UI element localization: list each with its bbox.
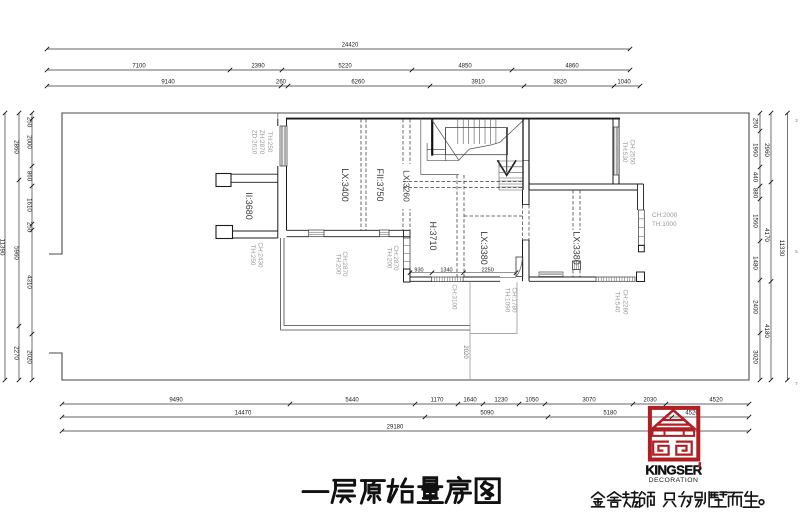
svg-text:FII:3750: FII:3750 xyxy=(375,168,385,201)
svg-text:1040: 1040 xyxy=(617,80,631,86)
svg-text:1560: 1560 xyxy=(751,214,758,228)
svg-text:2390: 2390 xyxy=(251,64,265,70)
svg-text:CH:2870: CH:2870 xyxy=(392,245,399,271)
svg-text:6260: 6260 xyxy=(351,80,365,86)
svg-text:860: 860 xyxy=(25,171,32,182)
svg-text:TH:250: TH:250 xyxy=(249,245,256,266)
svg-text:4520: 4520 xyxy=(709,398,723,404)
svg-text:9140: 9140 xyxy=(161,80,175,86)
svg-text:DECORATION: DECORATION xyxy=(649,477,699,484)
svg-text:4310: 4310 xyxy=(25,275,32,289)
svg-text:5090: 5090 xyxy=(480,411,494,417)
svg-text:14470: 14470 xyxy=(235,411,252,417)
svg-text:LX:3380: LX:3380 xyxy=(571,231,581,265)
svg-text:880: 880 xyxy=(751,188,758,199)
svg-text:2030: 2030 xyxy=(643,398,657,404)
svg-text:LX:3400: LX:3400 xyxy=(340,168,350,202)
svg-text:H:3710: H:3710 xyxy=(428,221,438,250)
svg-text:LX:3260: LX:3260 xyxy=(401,170,411,202)
svg-text:2250: 2250 xyxy=(482,267,494,273)
svg-text:1640: 1640 xyxy=(463,398,477,404)
svg-text:2270: 2270 xyxy=(12,346,19,360)
svg-text:CH:3100: CH:3100 xyxy=(451,284,458,310)
svg-text:2020: 2020 xyxy=(462,345,468,359)
svg-text:TH:200: TH:200 xyxy=(386,248,393,269)
svg-text:440: 440 xyxy=(751,172,758,183)
svg-text:250: 250 xyxy=(25,117,32,128)
svg-text:2400: 2400 xyxy=(751,300,758,314)
svg-text:II:3680: II:3680 xyxy=(244,192,254,220)
svg-text:930: 930 xyxy=(414,267,423,273)
svg-text:TH:540: TH:540 xyxy=(614,292,621,313)
svg-text:5220: 5220 xyxy=(338,64,352,70)
svg-text:5440: 5440 xyxy=(345,398,359,404)
svg-text:11390: 11390 xyxy=(0,239,5,256)
svg-text:CH:2550: CH:2550 xyxy=(629,139,636,165)
svg-text:2000: 2000 xyxy=(25,135,32,149)
svg-text:1170: 1170 xyxy=(431,398,445,404)
svg-text:TH:250: TH:250 xyxy=(266,132,273,153)
svg-text:1340: 1340 xyxy=(440,267,452,273)
svg-text:3820: 3820 xyxy=(553,80,567,86)
svg-text:TH:1000: TH:1000 xyxy=(652,221,677,228)
svg-text:3910: 3910 xyxy=(471,80,485,86)
svg-text:4180: 4180 xyxy=(763,324,770,338)
svg-text:5180: 5180 xyxy=(603,411,617,417)
svg-text:1050: 1050 xyxy=(525,398,539,404)
svg-text:CH:2280: CH:2280 xyxy=(622,289,629,315)
svg-text:KINGSER: KINGSER xyxy=(645,463,702,478)
svg-text:3070: 3070 xyxy=(582,398,596,404)
svg-text:7100: 7100 xyxy=(132,64,146,70)
svg-text:2020: 2020 xyxy=(25,350,32,364)
svg-text:2960: 2960 xyxy=(763,143,770,157)
svg-text:5960: 5960 xyxy=(12,246,19,260)
svg-text:2860: 2860 xyxy=(12,140,19,154)
svg-text:1230: 1230 xyxy=(494,398,508,404)
svg-text:250: 250 xyxy=(751,118,758,129)
svg-text:1960: 1960 xyxy=(751,143,758,157)
svg-text:ZD:2610: ZD:2610 xyxy=(250,130,257,155)
svg-text:1480: 1480 xyxy=(751,256,758,270)
svg-text:29180: 29180 xyxy=(387,425,404,431)
svg-text:TH:1090: TH:1090 xyxy=(504,288,511,313)
svg-text:CH:2430: CH:2430 xyxy=(256,242,263,268)
svg-text:CH:2870: CH:2870 xyxy=(341,251,348,277)
svg-text:9490: 9490 xyxy=(169,398,183,404)
svg-text:11330: 11330 xyxy=(778,240,785,257)
svg-text:TH:530: TH:530 xyxy=(621,142,628,163)
svg-text:CH:2000: CH:2000 xyxy=(652,212,678,219)
svg-text:1610: 1610 xyxy=(25,198,32,212)
svg-text:260: 260 xyxy=(276,80,287,86)
svg-text:250: 250 xyxy=(25,222,32,233)
svg-text:LX:3380: LX:3380 xyxy=(479,231,489,265)
svg-text:4850: 4850 xyxy=(458,64,472,70)
svg-text:4170: 4170 xyxy=(763,228,770,242)
svg-text:4860: 4860 xyxy=(565,64,579,70)
svg-text:24420: 24420 xyxy=(342,43,359,49)
svg-text:ZH:2870: ZH:2870 xyxy=(258,130,265,155)
svg-text:3020: 3020 xyxy=(751,350,758,364)
svg-text:TH:200: TH:200 xyxy=(335,254,342,275)
